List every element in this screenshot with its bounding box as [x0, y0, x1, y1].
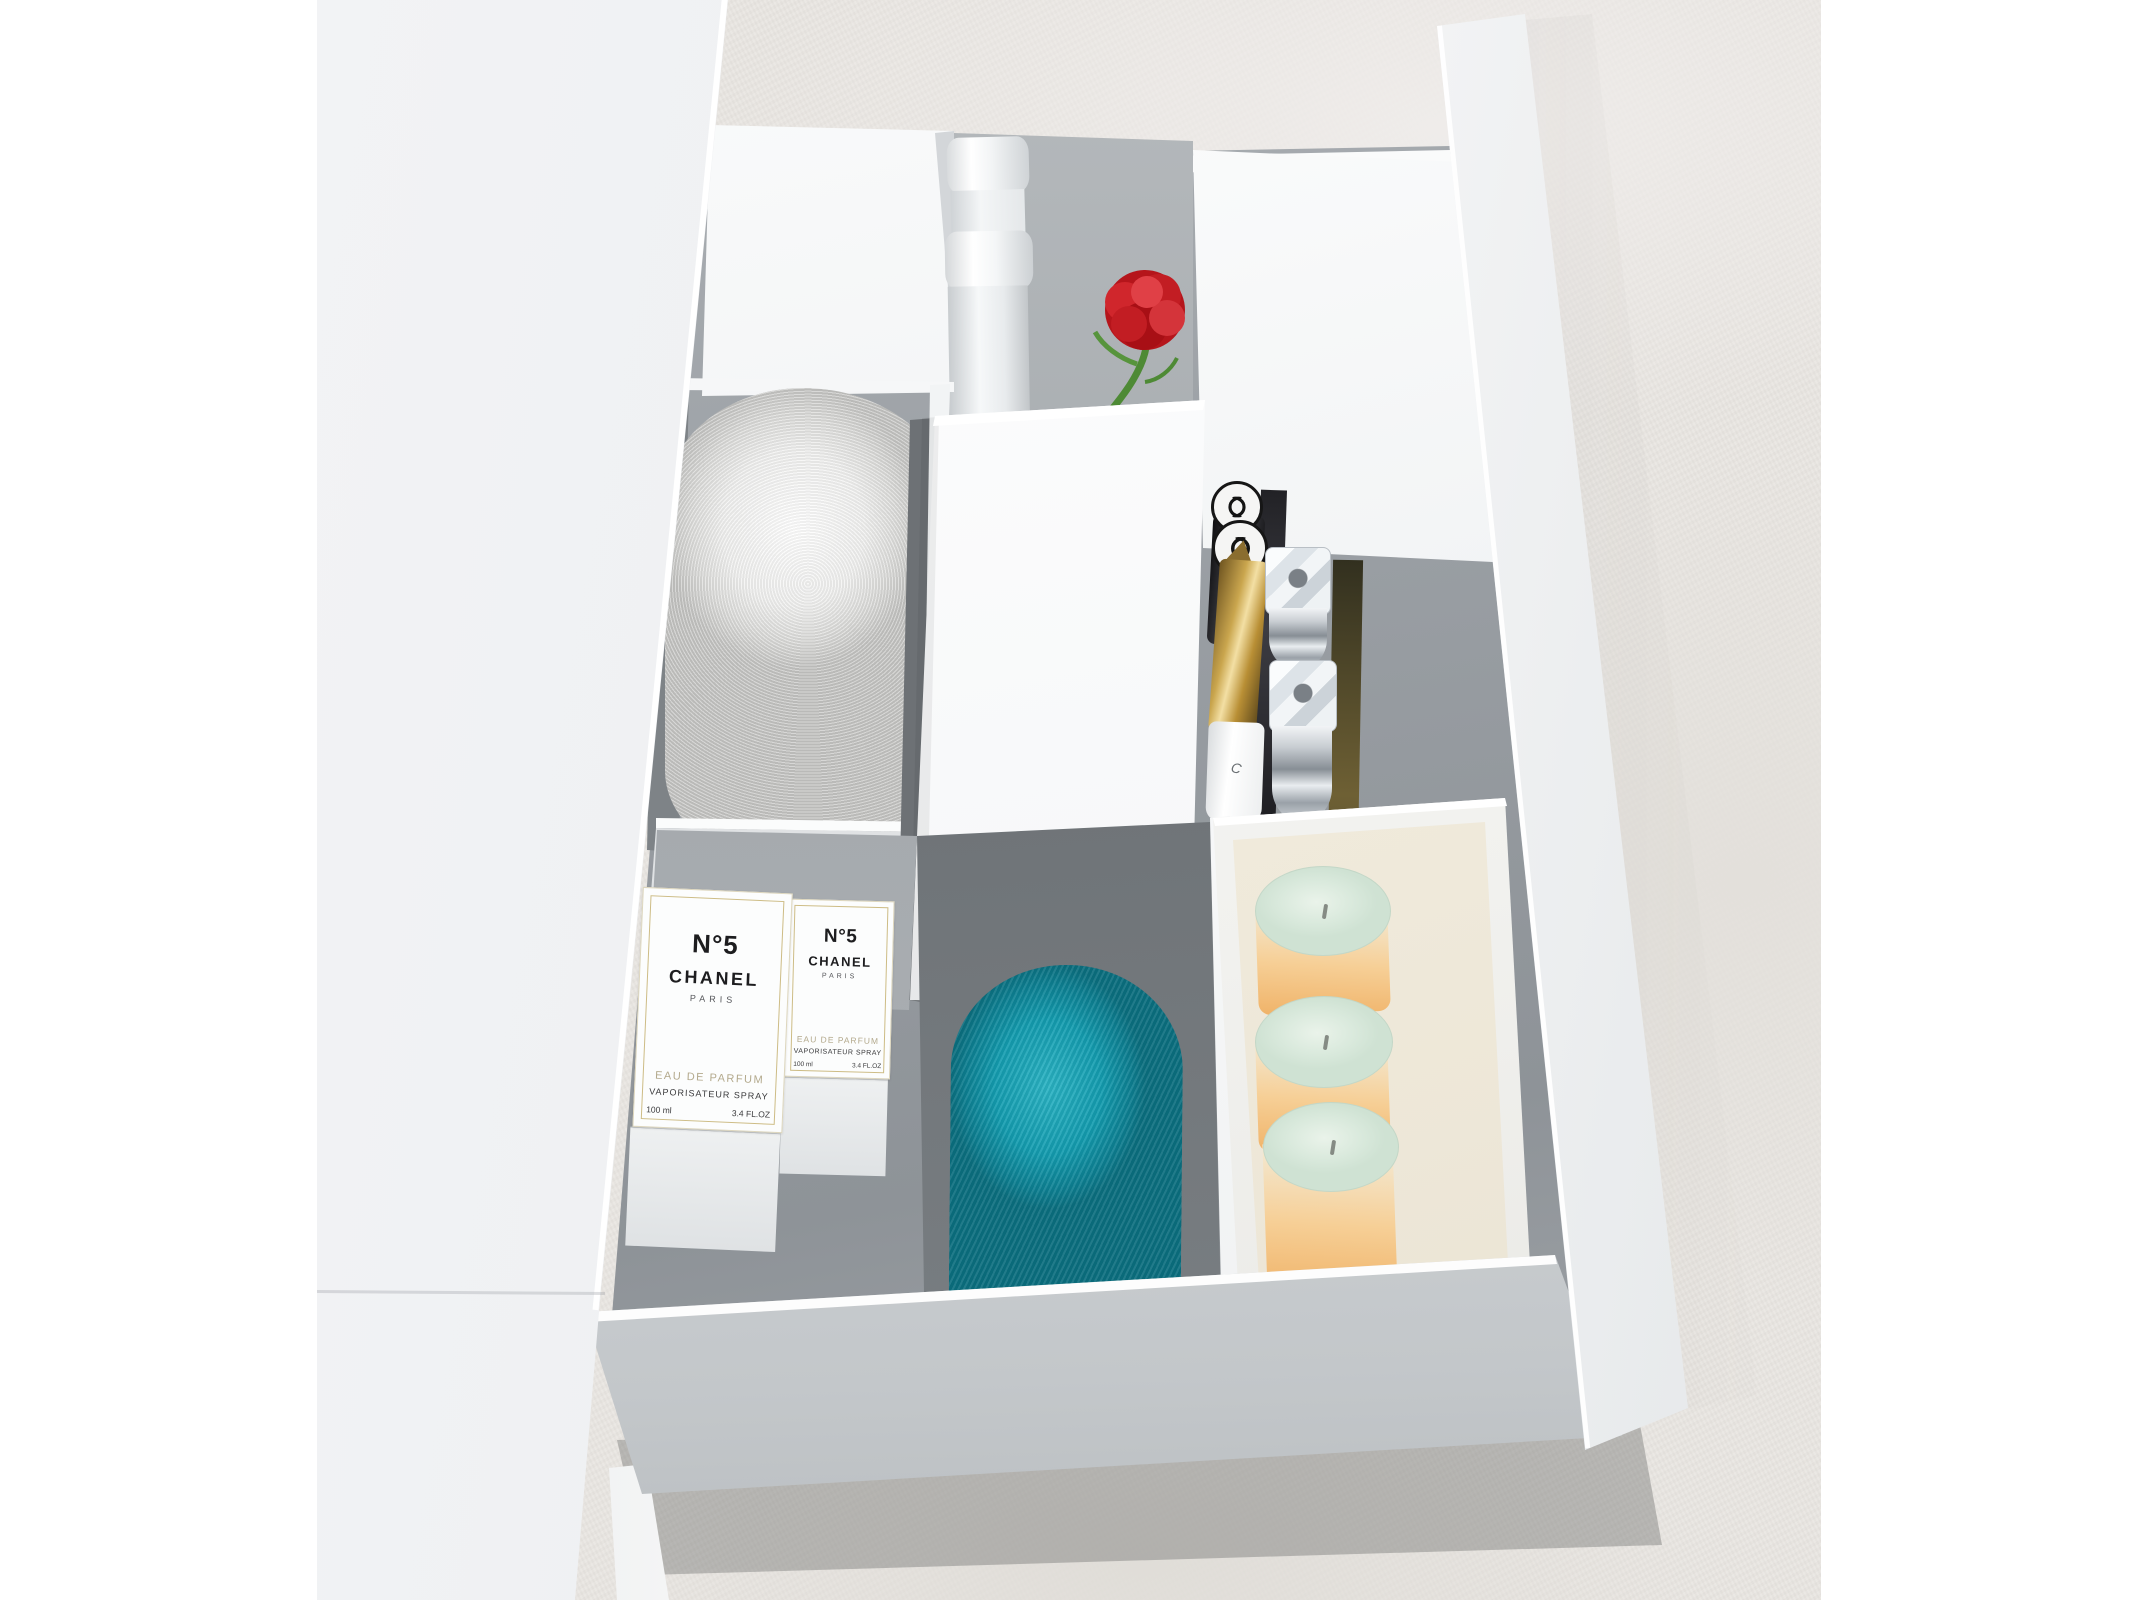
photo: C N°5 CHANEL PARIS EAU DE PARFUM VAPORIS…	[317, 0, 1821, 1600]
chanel-no5-box-large: N°5 CHANEL PARIS EAU DE PARFUM VAPORISAT…	[627, 887, 793, 1252]
crystal-bangle-charm-2	[1269, 660, 1337, 732]
crystal-bangle-charm-1	[1265, 547, 1331, 615]
box-city: PARIS	[690, 993, 737, 1005]
crystal-bangle-band-2	[1272, 726, 1332, 822]
box-number: N°5	[824, 926, 858, 949]
box-volume-ml: 100 ml	[793, 1061, 813, 1069]
chanel-box-lower	[625, 1127, 780, 1252]
cosmetic-bottle-back-cap	[946, 136, 1029, 194]
box-brand: CHANEL	[808, 953, 872, 970]
chanel-box-face: N°5 CHANEL PARIS EAU DE PARFUM VAPORISAT…	[784, 899, 895, 1080]
box-dispenser: VAPORISATEUR SPRAY	[649, 1086, 769, 1101]
candle-wick	[1323, 1035, 1329, 1050]
chanel-box-lower	[779, 1077, 888, 1177]
chanel-box-face: N°5 CHANEL PARIS EAU DE PARFUM VAPORISAT…	[632, 887, 792, 1133]
pillar-candle-top-1	[1255, 866, 1391, 956]
pillar-candle-top-3	[1263, 1102, 1399, 1192]
box-volume-ml: 100 ml	[646, 1104, 672, 1115]
gloss-tube-label: C	[1229, 759, 1243, 777]
box-brand: CHANEL	[669, 966, 760, 991]
candle-wick	[1322, 904, 1328, 919]
box-number: N°5	[691, 928, 739, 961]
cosmetic-bottle-front-cap	[945, 230, 1034, 290]
gloss-tube: C	[1205, 721, 1264, 823]
chanel-box-label: N°5 CHANEL PARIS EAU DE PARFUM VAPORISAT…	[793, 911, 885, 1070]
box-product: EAU DE PARFUM	[797, 1034, 880, 1046]
chanel-cc-logo-icon	[1223, 493, 1251, 521]
box-volume-oz: 3.4 FL.OZ	[732, 1108, 771, 1120]
box-product: EAU DE PARFUM	[655, 1070, 765, 1087]
chanel-box-label: N°5 CHANEL PARIS EAU DE PARFUM VAPORISAT…	[646, 904, 779, 1119]
box-volume-oz: 3.4 FL.OZ	[852, 1062, 881, 1070]
box-volume-row: 100 ml 3.4 FL.OZ	[646, 1104, 770, 1119]
chanel-no5-box-small: N°5 CHANEL PARIS EAU DE PARFUM VAPORISAT…	[781, 899, 894, 1177]
pillar-candle-top-2	[1255, 996, 1393, 1088]
candle-wick	[1330, 1140, 1336, 1155]
box-dispenser: VAPORISATEUR SPRAY	[794, 1048, 882, 1057]
box-city: PARIS	[822, 973, 858, 981]
box-volume-row: 100 ml 3.4 FL.OZ	[793, 1061, 881, 1070]
